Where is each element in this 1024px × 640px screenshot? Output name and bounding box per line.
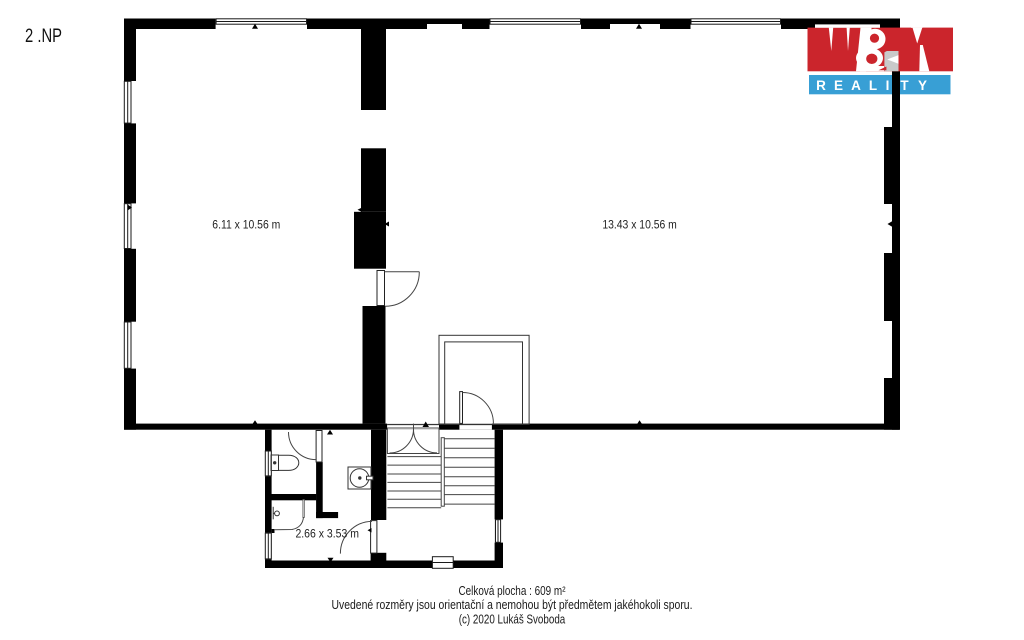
- svg-text:6.11 x 10.56 m: 6.11 x 10.56 m: [212, 219, 280, 231]
- svg-text:I: I: [886, 78, 890, 93]
- svg-text:Uvedené rozměry jsou orientačn: Uvedené rozměry jsou orientační a nemoho…: [332, 598, 693, 612]
- svg-text:A: A: [851, 78, 861, 93]
- svg-text:E: E: [834, 78, 843, 93]
- svg-text:L: L: [869, 78, 877, 93]
- svg-text:Celková plocha : 609 m²: Celková plocha : 609 m²: [459, 584, 566, 598]
- svg-text:13.43 x 10.56 m: 13.43 x 10.56 m: [602, 219, 677, 231]
- svg-text:2 .NP: 2 .NP: [25, 26, 62, 47]
- svg-text:2.66 x 3.53 m: 2.66 x 3.53 m: [295, 528, 359, 540]
- svg-text:(c) 2020 Lukáš Svoboda: (c) 2020 Lukáš Svoboda: [459, 612, 566, 626]
- svg-text:R: R: [816, 78, 826, 93]
- svg-text:Y: Y: [918, 78, 927, 93]
- svg-text:T: T: [900, 78, 909, 93]
